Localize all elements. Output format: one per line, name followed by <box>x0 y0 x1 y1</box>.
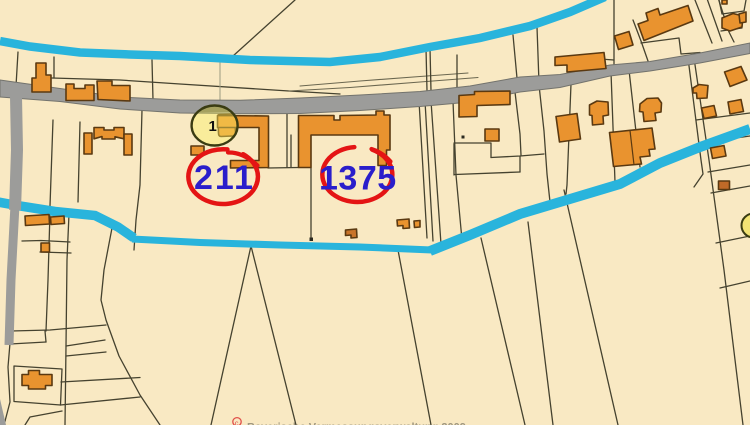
svg-text:211: 211 <box>194 159 255 197</box>
svg-text:c: c <box>235 418 239 425</box>
svg-text:1: 1 <box>209 118 217 135</box>
svg-text:Bayerische Vermessungsverwaltu: Bayerische Vermessungsverwaltung 2009 <box>247 422 466 425</box>
svg-text:1375: 1375 <box>319 160 397 198</box>
